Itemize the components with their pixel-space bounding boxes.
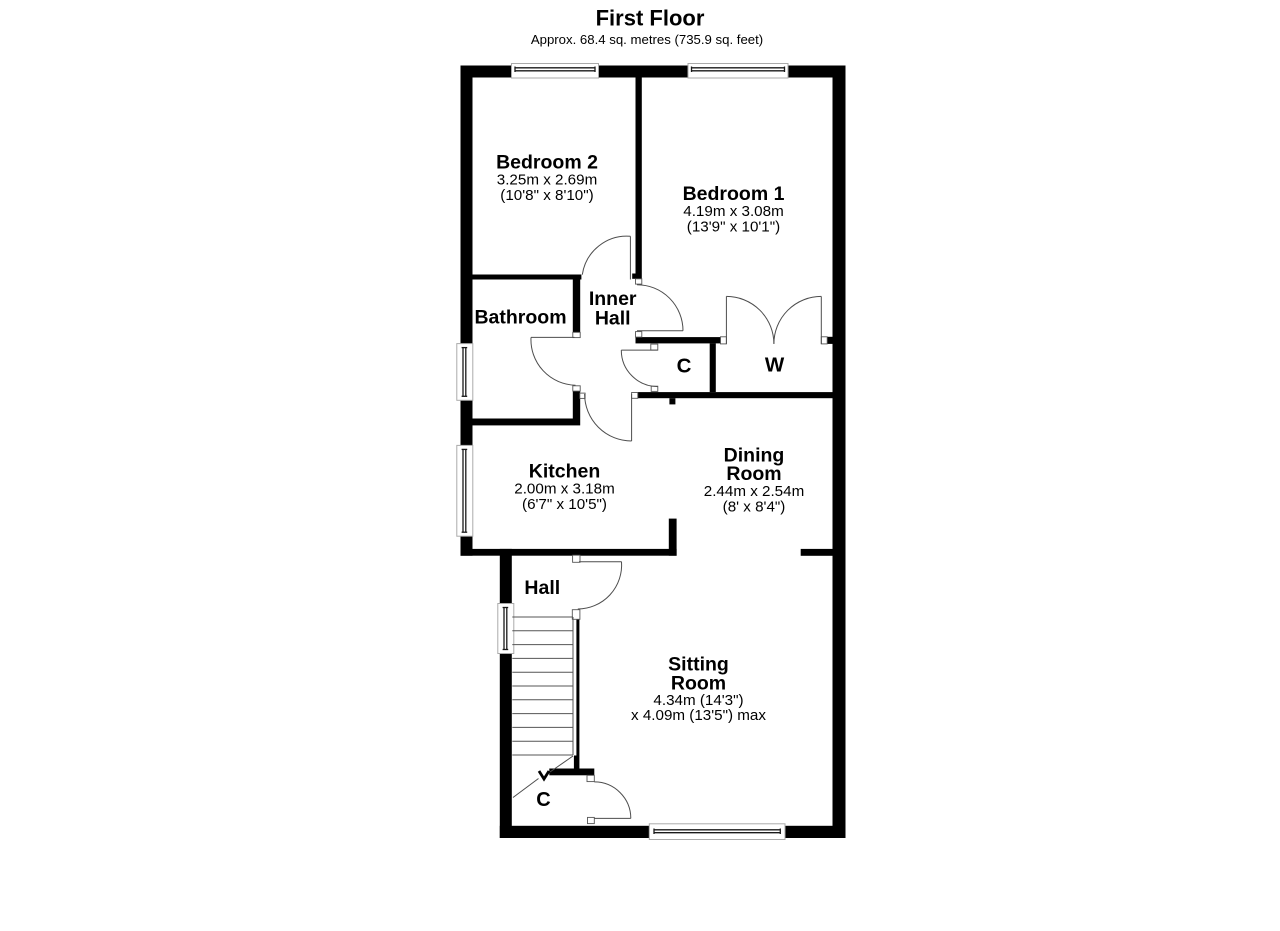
svg-text:2.00m x 3.18m: 2.00m x 3.18m bbox=[514, 481, 614, 498]
svg-text:(10'8" x 8'10"): (10'8" x 8'10") bbox=[500, 187, 593, 204]
svg-text:First Floor: First Floor bbox=[596, 5, 705, 30]
svg-text:Bedroom 2: Bedroom 2 bbox=[496, 152, 598, 174]
svg-text:Hall: Hall bbox=[524, 577, 560, 599]
svg-text:4.19m x 3.08m: 4.19m x 3.08m bbox=[683, 203, 783, 220]
svg-text:C: C bbox=[677, 354, 692, 377]
svg-text:Inner: Inner bbox=[589, 288, 637, 310]
svg-text:2.44m x 2.54m: 2.44m x 2.54m bbox=[704, 483, 804, 500]
svg-text:Hall: Hall bbox=[595, 308, 631, 330]
svg-text:(8' x 8'4"): (8' x 8'4") bbox=[723, 499, 786, 516]
svg-text:x 4.09m (13'5") max: x 4.09m (13'5") max bbox=[631, 707, 766, 724]
svg-text:3.25m x 2.69m: 3.25m x 2.69m bbox=[497, 172, 597, 189]
svg-text:Approx. 68.4 sq. metres (735.9: Approx. 68.4 sq. metres (735.9 sq. feet) bbox=[531, 32, 763, 47]
svg-text:(6'7" x 10'5"): (6'7" x 10'5") bbox=[522, 496, 607, 513]
svg-text:C: C bbox=[536, 789, 550, 811]
svg-text:Bedroom 1: Bedroom 1 bbox=[683, 183, 785, 205]
svg-text:Kitchen: Kitchen bbox=[529, 461, 601, 483]
svg-text:Bathroom: Bathroom bbox=[474, 307, 566, 329]
svg-text:Room: Room bbox=[726, 463, 781, 485]
svg-text:(13'9" x 10'1"): (13'9" x 10'1") bbox=[687, 218, 780, 235]
svg-text:W: W bbox=[765, 354, 785, 377]
